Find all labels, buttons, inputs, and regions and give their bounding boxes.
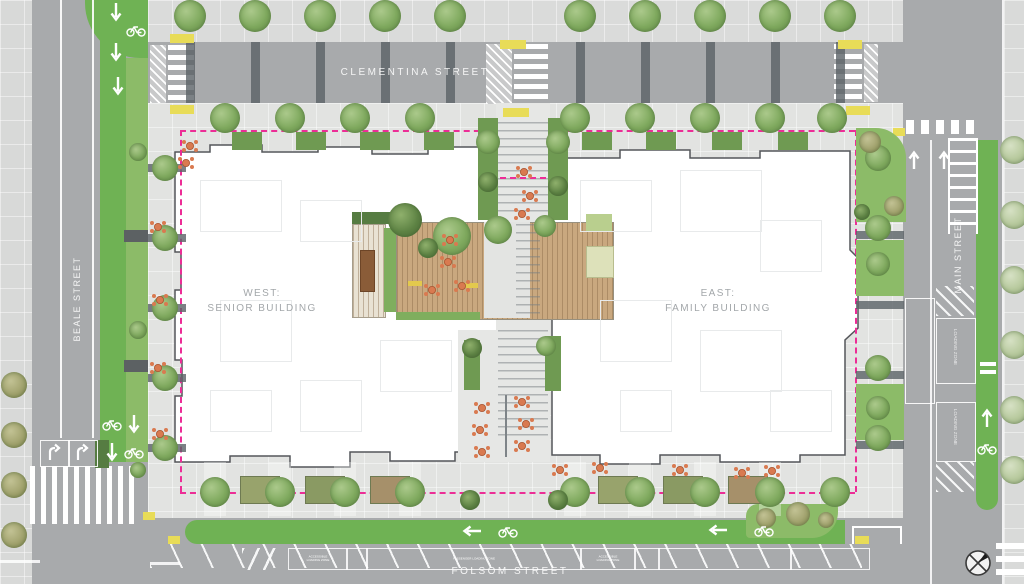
- bike-lane-icon: [124, 446, 144, 459]
- lane-line: [60, 0, 62, 438]
- cafe-table-icon: [591, 459, 609, 477]
- tree: [865, 425, 891, 451]
- lane-dash: [150, 562, 180, 565]
- tree: [395, 477, 425, 507]
- tree: [174, 0, 206, 32]
- interior-wall: [300, 200, 362, 242]
- shrub-box: [582, 132, 612, 150]
- tactile-pad: [168, 536, 180, 544]
- interior-wall: [680, 170, 762, 232]
- interior-wall: [210, 390, 272, 432]
- tactile-pad: [846, 106, 870, 115]
- dark-paving-bar: [771, 42, 780, 103]
- tree: [564, 0, 596, 32]
- curb-line: [852, 526, 902, 528]
- tree: [1000, 201, 1024, 229]
- cafe-table-icon: [515, 163, 533, 181]
- tree: [1000, 136, 1024, 164]
- cafe-table-icon: [149, 218, 167, 236]
- turn-arrow-icon: [74, 443, 90, 461]
- tree: [854, 204, 870, 220]
- tree: [388, 203, 422, 237]
- tree: [129, 321, 147, 339]
- tree: [434, 0, 466, 32]
- tree: [460, 490, 480, 510]
- cafe-table-icon: [551, 461, 569, 479]
- tree: [210, 103, 240, 133]
- lane-arrow-icon: [938, 150, 950, 170]
- tree: [820, 477, 850, 507]
- yellow-bench: [408, 281, 422, 286]
- bike-lane-icon: [102, 418, 122, 431]
- lane-arrow-icon: [708, 524, 728, 536]
- median-planter: [124, 230, 148, 242]
- tree: [865, 355, 891, 381]
- tree: [369, 0, 401, 32]
- cafe-table-icon: [181, 137, 199, 155]
- tree: [818, 512, 834, 528]
- tree: [548, 490, 568, 510]
- interior-wall: [770, 390, 832, 432]
- interior-wall: [760, 220, 822, 272]
- lane-arrow-icon: [128, 414, 140, 434]
- tree: [865, 215, 891, 241]
- curb-line: [900, 528, 902, 544]
- plan-graphics: [0, 0, 1024, 584]
- dark-paving-bar: [576, 42, 585, 103]
- tree: [405, 103, 435, 133]
- dark-paving-bar: [836, 42, 845, 103]
- lane-arrow-icon: [110, 2, 122, 22]
- cafe-table-icon: [441, 231, 459, 249]
- tree: [884, 196, 904, 216]
- street-label-folsom: FOLSOM STREET: [410, 566, 610, 577]
- shrub-box: [712, 132, 742, 150]
- tree: [560, 103, 590, 133]
- lane-arrow-icon: [112, 76, 124, 96]
- cafe-table-icon: [473, 399, 491, 417]
- tree: [859, 131, 881, 153]
- bike-lane-icon: [754, 524, 774, 537]
- cafe-table-icon: [513, 205, 531, 223]
- east-building-label-line2: FAMILY BUILDING: [638, 301, 798, 316]
- tactile-pad: [503, 108, 529, 117]
- median-planter: [124, 360, 148, 372]
- site-plan: ACCESSIBLE LOADING ZONE PASSENGER LOADIN…: [0, 0, 1024, 584]
- tree: [1000, 396, 1024, 424]
- cafe-table-icon: [439, 253, 457, 271]
- tree: [866, 396, 890, 420]
- tree: [786, 502, 810, 526]
- cafe-table-icon: [521, 187, 539, 205]
- tree: [625, 103, 655, 133]
- tree: [1, 372, 27, 398]
- street-label-main: MAIN STREET: [953, 205, 963, 305]
- tree: [1, 422, 27, 448]
- tree: [239, 0, 271, 32]
- west-building-label-line2: SENIOR BUILDING: [182, 301, 342, 316]
- cafe-table-icon: [473, 443, 491, 461]
- tree: [536, 336, 556, 356]
- tactile-pad: [170, 105, 194, 114]
- tactile-pad: [143, 512, 155, 520]
- cafe-table-icon: [149, 359, 167, 377]
- shrub-box: [360, 132, 390, 150]
- tree: [534, 215, 556, 237]
- tree: [817, 103, 847, 133]
- tree: [152, 155, 178, 181]
- tree: [129, 143, 147, 161]
- railing: [505, 395, 507, 457]
- west-building-label-line1: WEST:: [182, 286, 342, 301]
- cafe-table-icon: [177, 154, 195, 172]
- tree: [866, 252, 890, 276]
- shrub-box: [424, 132, 454, 150]
- turn-arrow-icon: [46, 443, 62, 461]
- tactile-pad: [855, 536, 869, 544]
- shrub-box: [232, 132, 262, 150]
- tree: [340, 103, 370, 133]
- west-building-label: WEST: SENIOR BUILDING: [182, 286, 342, 316]
- tree: [418, 238, 438, 258]
- tree: [462, 338, 482, 358]
- tree: [824, 0, 856, 32]
- dark-paving-bar: [186, 42, 195, 103]
- cafe-table-icon: [471, 421, 489, 439]
- tree: [265, 477, 295, 507]
- cafe-table-icon: [517, 415, 535, 433]
- bay-label: LOADING ZONE: [953, 403, 958, 451]
- interior-wall: [380, 340, 452, 392]
- tree: [330, 477, 360, 507]
- cafe-table-icon: [671, 461, 689, 479]
- cafe-table-icon: [453, 277, 471, 295]
- lane-arrow-icon: [908, 150, 920, 170]
- interior-wall: [700, 330, 782, 392]
- north-arrow-icon: [964, 549, 992, 577]
- cafe-table-icon: [513, 393, 531, 411]
- dark-paving-bar: [641, 42, 650, 103]
- interior-wall: [580, 180, 652, 232]
- tree: [200, 477, 230, 507]
- cafe-table-icon: [423, 281, 441, 299]
- tree: [1000, 266, 1024, 294]
- bike-lane-icon: [977, 442, 997, 455]
- planter-strip: [396, 312, 480, 320]
- lane-arrow-icon: [462, 525, 482, 537]
- tactile-pad: [170, 34, 194, 43]
- hatch-zone: [936, 462, 974, 492]
- tree: [130, 462, 146, 478]
- tactile-pad: [500, 40, 526, 49]
- street-label-clementina: CLEMENTINA STREET: [310, 67, 520, 78]
- east-building-label-line1: EAST:: [638, 286, 798, 301]
- interior-wall: [620, 390, 672, 432]
- bay-label: LOADING ZONE: [953, 323, 958, 371]
- shrub-box: [646, 132, 676, 150]
- long-table: [360, 250, 375, 292]
- cafe-table-icon: [151, 291, 169, 309]
- yield-bar: [980, 370, 996, 374]
- tree: [690, 103, 720, 133]
- lawn-mat: [586, 246, 614, 278]
- tree: [759, 0, 791, 32]
- tree: [1, 472, 27, 498]
- lane-arrow-icon: [106, 442, 118, 462]
- shrub-box: [778, 132, 808, 150]
- lane-line: [930, 140, 932, 584]
- tree: [546, 130, 570, 154]
- tree: [755, 477, 785, 507]
- tree: [548, 176, 568, 196]
- east-building-label: EAST: FAMILY BUILDING: [638, 286, 798, 316]
- bike-lane-icon: [498, 525, 518, 538]
- cafe-table-icon: [513, 437, 531, 455]
- tree: [1000, 331, 1024, 359]
- curb-line: [852, 528, 854, 544]
- interior-wall: [200, 180, 282, 232]
- cafe-table-icon: [151, 425, 169, 443]
- tree: [484, 216, 512, 244]
- lane-line: [1002, 0, 1004, 584]
- tree: [304, 0, 336, 32]
- tree: [1, 522, 27, 548]
- tree: [478, 172, 498, 192]
- yield-bar: [980, 362, 996, 366]
- tree: [690, 477, 720, 507]
- interior-wall: [300, 380, 362, 432]
- cafe-table-icon: [763, 462, 781, 480]
- dark-paving-bar: [706, 42, 715, 103]
- planter-strip: [384, 228, 396, 312]
- lane-arrow-icon: [981, 408, 993, 428]
- dark-paving-bar: [251, 42, 260, 103]
- tree: [755, 103, 785, 133]
- tree: [476, 130, 500, 154]
- tree: [629, 0, 661, 32]
- tactile-pad: [838, 40, 862, 49]
- lane-arrow-icon: [110, 42, 122, 62]
- shrub-box: [296, 132, 326, 150]
- tree: [625, 477, 655, 507]
- bike-lane-icon: [126, 24, 146, 37]
- tree: [1000, 456, 1024, 484]
- lane-dash: [0, 560, 40, 563]
- lane-line: [92, 0, 94, 438]
- cafe-table-icon: [733, 464, 751, 482]
- dark-paving-bar: [856, 301, 904, 309]
- street-label-beale: BEALE STREET: [72, 249, 82, 349]
- tree: [694, 0, 726, 32]
- tree: [275, 103, 305, 133]
